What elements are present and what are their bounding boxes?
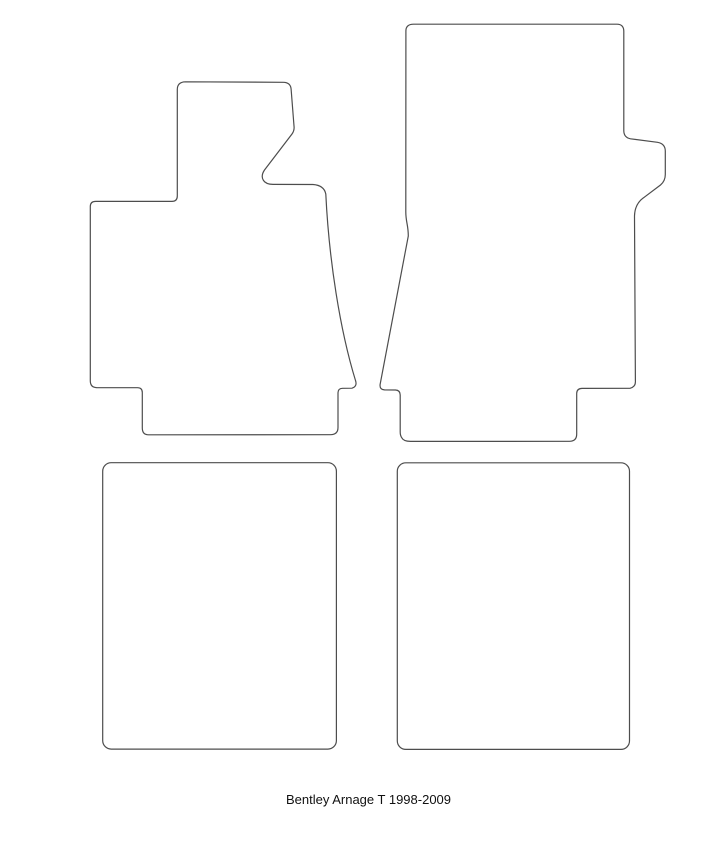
svg-text:Bentley Arnage T 1998-2009: Bentley Arnage T 1998-2009: [286, 792, 451, 807]
